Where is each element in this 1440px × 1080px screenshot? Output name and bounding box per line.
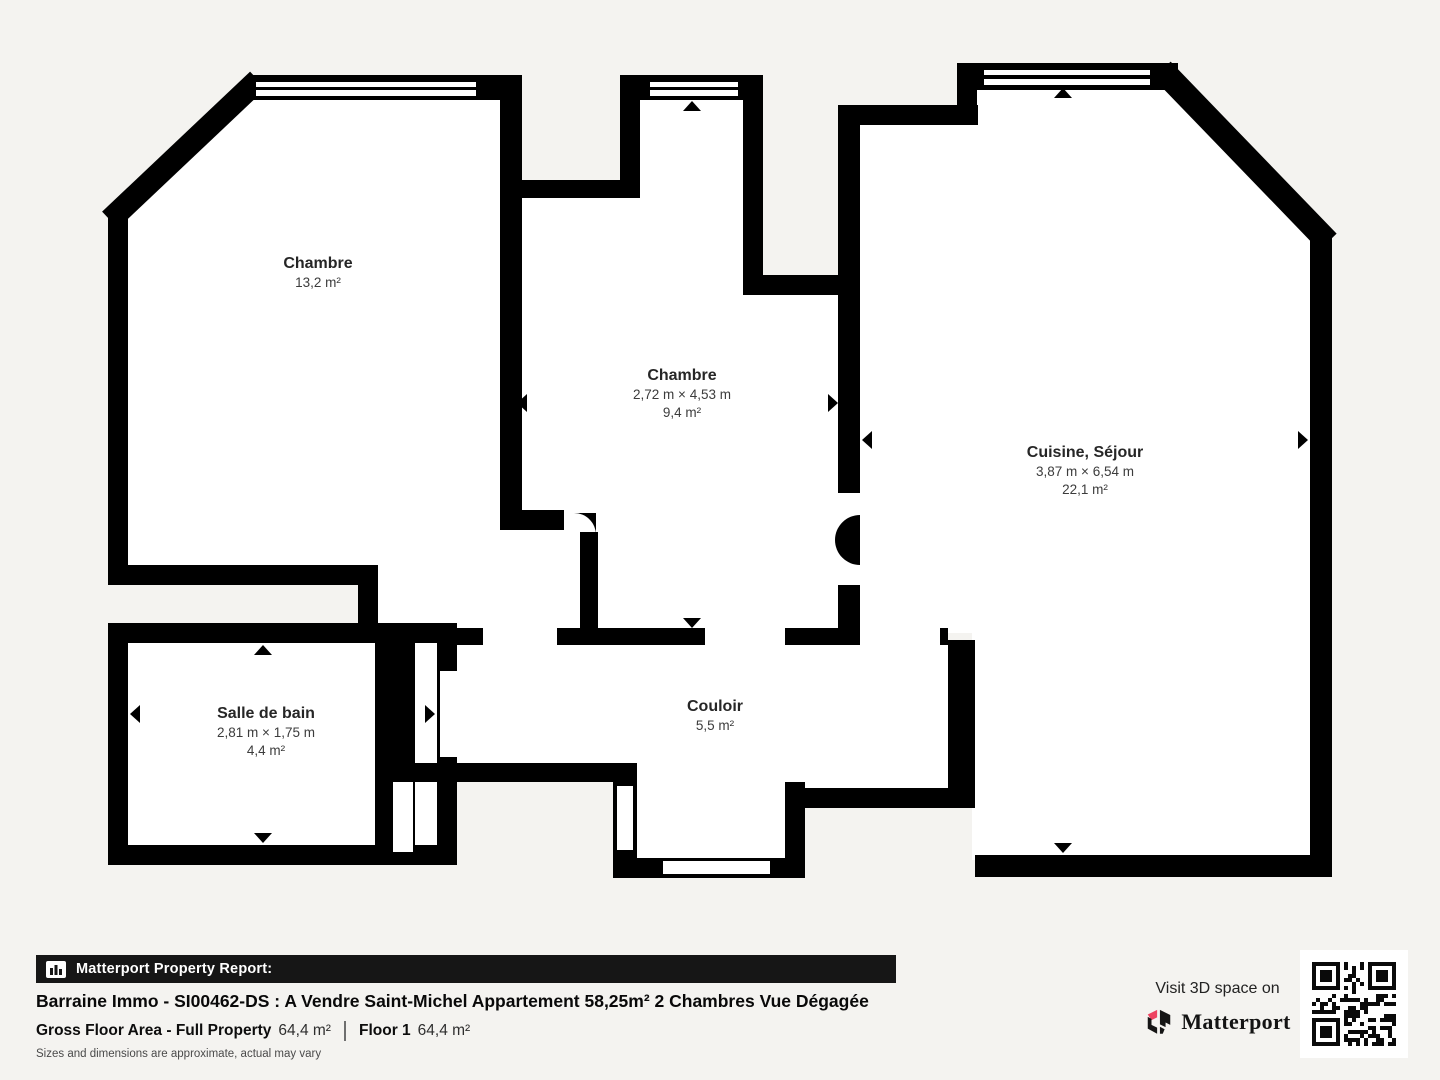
matterport-floorplan-report: Chambre 13,2 m² Chambre 2,72 m × 4,53 m … (0, 0, 1440, 1080)
room-dimensions: 3,87 m × 6,54 m (1027, 463, 1143, 481)
floor-value: 64,4 m² (418, 1022, 471, 1040)
matterport-logo-icon (1144, 1007, 1174, 1037)
room-name: Chambre (283, 254, 352, 274)
property-title: Barraine Immo - SI00462-DS : A Vendre Sa… (36, 991, 916, 1012)
matterport-wordmark: Matterport (1181, 1009, 1290, 1035)
room-area: 4,4 m² (217, 742, 315, 760)
room-label-chambre-1: Chambre 13,2 m² (283, 254, 352, 292)
report-bar: Matterport Property Report: (36, 955, 896, 983)
visit-3d-block: Visit 3D space on Matterport (1120, 980, 1315, 1037)
room-label-couloir: Couloir 5,5 m² (687, 697, 743, 735)
room-label-cuisine-sejour: Cuisine, Séjour 3,87 m × 6,54 m 22,1 m² (1027, 443, 1143, 499)
room-area: 9,4 m² (633, 404, 731, 422)
room-label-salle-de-bain: Salle de bain 2,81 m × 1,75 m 4,4 m² (217, 704, 315, 760)
visit-3d-text: Visit 3D space on (1120, 980, 1315, 998)
report-bar-label: Matterport Property Report: (76, 961, 272, 977)
room-name: Chambre (633, 366, 731, 386)
room-chambre-2-right (755, 285, 850, 635)
divider (344, 1021, 346, 1041)
matterport-logo: Matterport (1120, 1007, 1315, 1037)
room-couloir-right (790, 640, 951, 788)
disclaimer-text: Sizes and dimensions are approximate, ac… (36, 1048, 321, 1060)
floor-plan (0, 0, 1440, 940)
room-dimensions: 2,72 m × 4,53 m (633, 386, 731, 404)
gross-floor-area-value: 64,4 m² (278, 1022, 331, 1040)
room-label-chambre-2: Chambre 2,72 m × 4,53 m 9,4 m² (633, 366, 731, 422)
room-name: Couloir (687, 697, 743, 717)
room-area: 5,5 m² (687, 717, 743, 735)
room-area: 13,2 m² (283, 274, 352, 292)
room-couloir-entry (637, 640, 790, 858)
qr-panel (1300, 950, 1408, 1058)
qr-code (1312, 962, 1396, 1046)
area-summary: Gross Floor Area - Full Property 64,4 m²… (36, 1021, 470, 1041)
gross-floor-area-label: Gross Floor Area - Full Property (36, 1022, 271, 1040)
room-name: Cuisine, Séjour (1027, 443, 1143, 463)
room-area: 22,1 m² (1027, 481, 1143, 499)
room-dimensions: 2,81 m × 1,75 m (217, 724, 315, 742)
room-name: Salle de bain (217, 704, 315, 724)
floor-label: Floor 1 (359, 1022, 411, 1040)
property-report-icon (46, 961, 66, 978)
